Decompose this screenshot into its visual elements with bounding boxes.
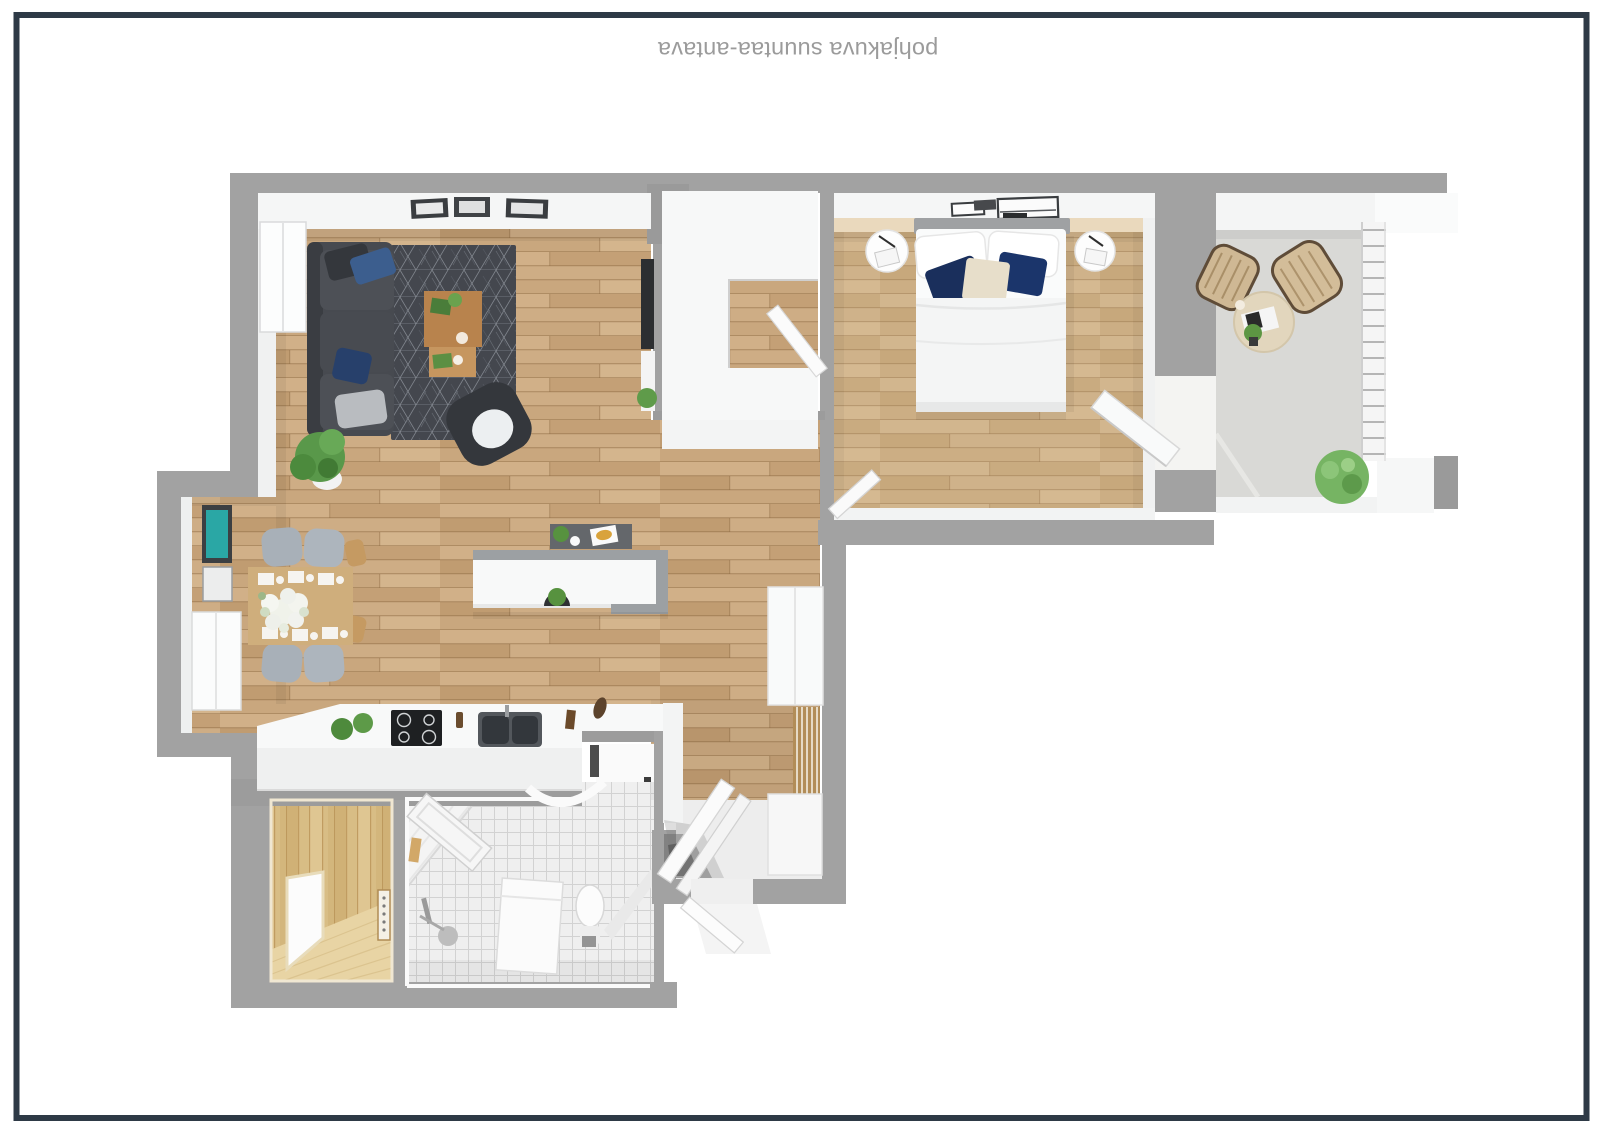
svg-text:pohjakuva suuntaa-antava: pohjakuva suuntaa-antava xyxy=(657,37,938,63)
